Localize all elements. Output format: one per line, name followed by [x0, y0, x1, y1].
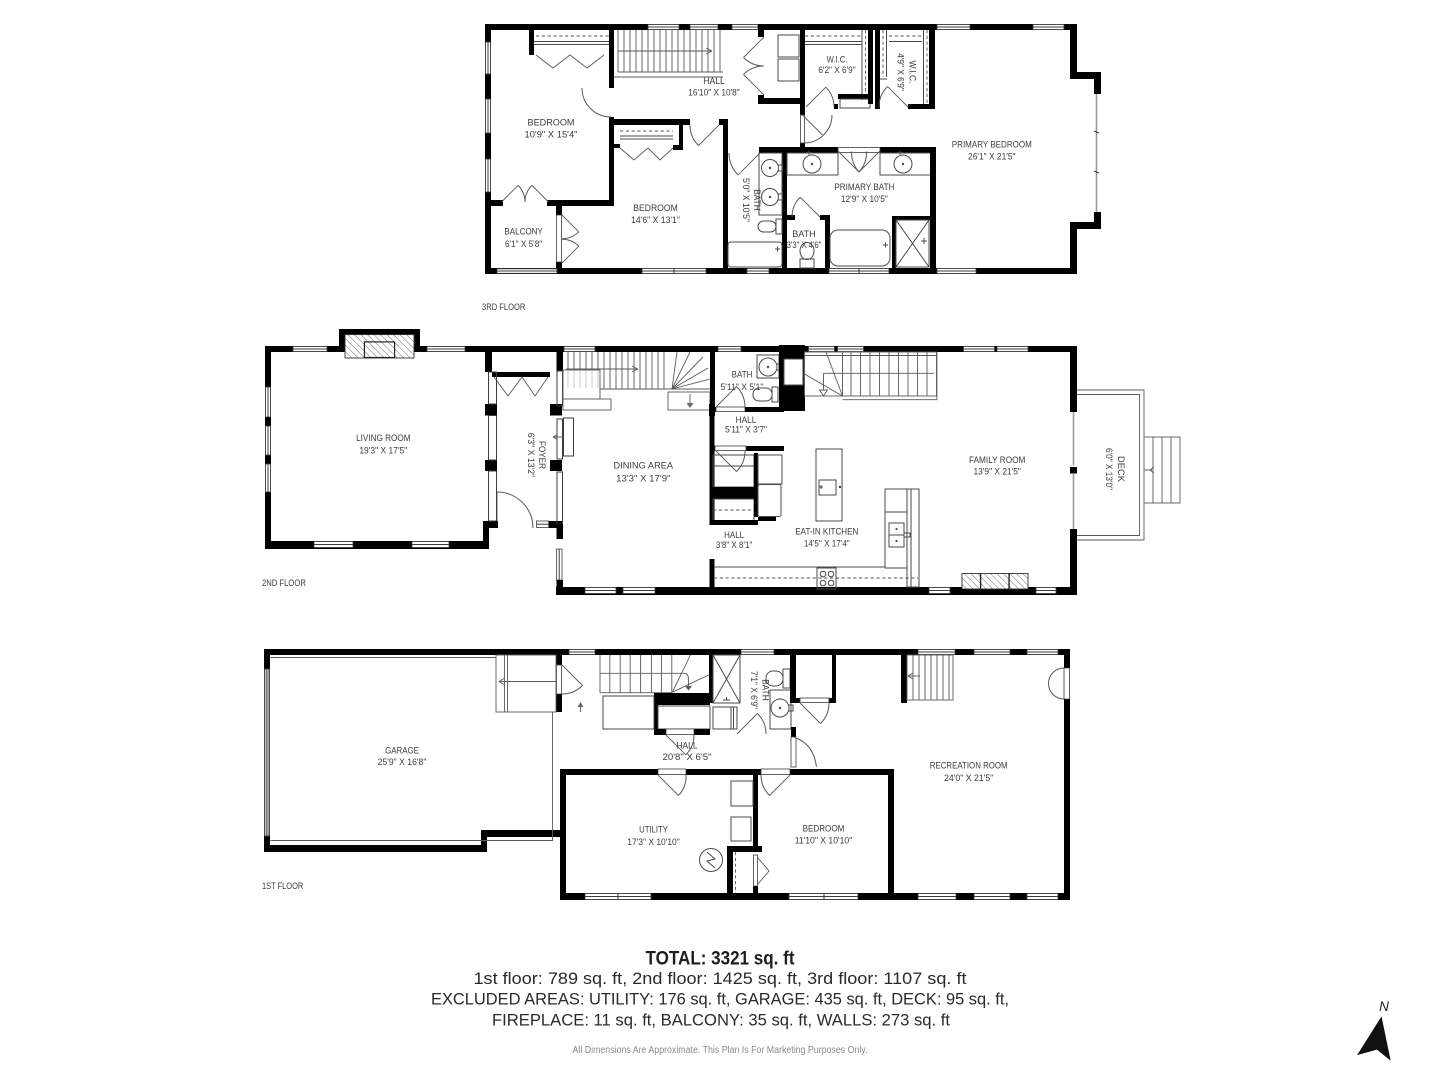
- svg-text:DINING AREA: DINING AREA: [614, 461, 674, 471]
- svg-text:EAT-IN KITCHEN: EAT-IN KITCHEN: [795, 527, 858, 537]
- svg-text:1ST FLOOR: 1ST FLOOR: [262, 881, 304, 891]
- svg-text:BATH: BATH: [732, 370, 753, 380]
- svg-text:14'5" X 17'4": 14'5" X 17'4": [804, 539, 850, 549]
- svg-text:25'9" X 16'8": 25'9" X 16'8": [378, 757, 427, 767]
- svg-text:W.I.C.: W.I.C.: [827, 54, 848, 64]
- svg-text:3RD FLOOR: 3RD FLOOR: [482, 302, 526, 312]
- svg-text:BATH: BATH: [792, 229, 815, 239]
- svg-text:26'1" X 21'5": 26'1" X 21'5": [968, 152, 1016, 162]
- svg-text:UTILITY: UTILITY: [639, 825, 668, 835]
- svg-text:GARAGE: GARAGE: [385, 746, 419, 756]
- svg-text:TOTAL: 3321 sq. ft: TOTAL: 3321 sq. ft: [646, 949, 796, 970]
- svg-text:12'9" X 10'5": 12'9" X 10'5": [841, 194, 888, 204]
- svg-text:13'9" X 21'5": 13'9" X 21'5": [974, 466, 1021, 476]
- svg-text:24'0" X 21'5": 24'0" X 21'5": [944, 773, 993, 783]
- svg-text:10'9" X 15'4": 10'9" X 15'4": [525, 130, 578, 140]
- svg-text:LIVING ROOM: LIVING ROOM: [356, 433, 410, 443]
- svg-text:3'8" X 8'1": 3'8" X 8'1": [716, 540, 752, 550]
- svg-text:1st floor: 789 sq. ft, 2nd flo: 1st floor: 789 sq. ft, 2nd floor: 1425 s…: [474, 969, 967, 988]
- svg-text:FIREPLACE: 11 sq. ft, BALCONY:: FIREPLACE: 11 sq. ft, BALCONY: 35 sq. ft…: [492, 1011, 950, 1030]
- svg-text:19'3" X 17'5": 19'3" X 17'5": [359, 445, 407, 455]
- svg-text:BEDROOM: BEDROOM: [803, 824, 845, 834]
- svg-text:W.I.C.: W.I.C.: [908, 61, 918, 84]
- svg-text:BATH: BATH: [760, 679, 770, 701]
- svg-text:All Dimensions Are Approximate: All Dimensions Are Approximate. This Pla…: [573, 1045, 868, 1056]
- svg-text:FOYER: FOYER: [537, 441, 547, 469]
- svg-text:7'1" X 6'9": 7'1" X 6'9": [749, 671, 759, 709]
- svg-text:13'3" X 17'9": 13'3" X 17'9": [616, 474, 670, 484]
- svg-text:5'0" X 10'5": 5'0" X 10'5": [741, 178, 751, 222]
- svg-text:HALL: HALL: [736, 415, 757, 425]
- svg-text:14'6" X 13'1": 14'6" X 13'1": [631, 215, 680, 225]
- svg-text:17'3" X 10'10": 17'3" X 10'10": [627, 837, 680, 847]
- svg-text:HALL: HALL: [703, 76, 725, 86]
- svg-text:6'1" X 5'8": 6'1" X 5'8": [505, 239, 542, 249]
- svg-text:BEDROOM: BEDROOM: [528, 118, 575, 128]
- svg-text:EXCLUDED AREAS: UTILITY: 176 s: EXCLUDED AREAS: UTILITY: 176 sq. ft, GAR…: [431, 990, 1009, 1009]
- svg-text:RECREATION ROOM: RECREATION ROOM: [930, 761, 1008, 771]
- svg-text:6'2" X 6'9": 6'2" X 6'9": [818, 65, 855, 75]
- svg-text:PRIMARY BEDROOM: PRIMARY BEDROOM: [952, 139, 1032, 149]
- svg-text:HALL: HALL: [677, 741, 698, 751]
- svg-text:16'10" X 10'8": 16'10" X 10'8": [688, 88, 740, 98]
- svg-text:3'3" X 4'6": 3'3" X 4'6": [787, 240, 822, 250]
- svg-text:6'0" X 13'0": 6'0" X 13'0": [1104, 448, 1114, 490]
- svg-text:DECK: DECK: [1116, 456, 1126, 482]
- svg-text:N: N: [1379, 999, 1389, 1014]
- svg-text:20'8" X 6'5": 20'8" X 6'5": [663, 752, 712, 762]
- svg-text:6'3" X 13'2": 6'3" X 13'2": [526, 433, 536, 478]
- svg-text:5'11" X 5'1": 5'11" X 5'1": [721, 382, 764, 392]
- svg-text:HALL: HALL: [724, 530, 744, 540]
- svg-text:PRIMARY BATH: PRIMARY BATH: [834, 182, 894, 192]
- svg-text:BATH: BATH: [752, 189, 762, 211]
- svg-text:FAMILY ROOM: FAMILY ROOM: [969, 455, 1025, 465]
- svg-text:BEDROOM: BEDROOM: [633, 203, 678, 213]
- svg-text:BALCONY: BALCONY: [504, 227, 542, 237]
- svg-text:11'10" X 10'10": 11'10" X 10'10": [795, 835, 853, 845]
- svg-text:4'9" X 6'9": 4'9" X 6'9": [896, 53, 906, 91]
- svg-text:2ND FLOOR: 2ND FLOOR: [262, 578, 306, 588]
- svg-text:5'11" X 3'7": 5'11" X 3'7": [725, 425, 767, 435]
